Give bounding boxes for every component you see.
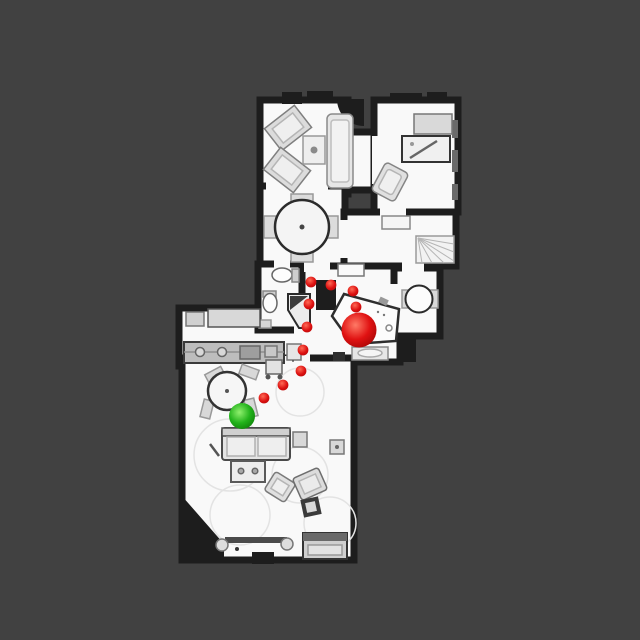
waypoint-dot (304, 299, 315, 310)
goal-marker (342, 313, 377, 348)
floorplan-viewport (0, 0, 640, 640)
sink (259, 320, 271, 328)
kitchen-cabinet (208, 309, 260, 327)
coffee-table (231, 461, 265, 482)
start-marker (229, 403, 255, 429)
round-table (406, 286, 433, 313)
floorplan-map (0, 0, 640, 640)
toilet (272, 268, 292, 282)
waypoint-dot (326, 280, 337, 291)
cabinet (414, 114, 452, 134)
waypoint-dot (348, 286, 359, 297)
waypoint-dot (259, 393, 270, 404)
kitchen-cart (266, 360, 282, 374)
stairs (416, 236, 454, 263)
waypoint-dot (302, 322, 313, 333)
tv-stand (303, 533, 347, 559)
waypoint-dot (296, 366, 307, 377)
hall-table (382, 216, 410, 229)
toilet (263, 294, 277, 313)
side-table-dark (300, 496, 321, 517)
waypoint-dot (351, 302, 362, 313)
wall-shelf (338, 264, 364, 276)
waypoint-dot (278, 380, 289, 391)
couch (222, 428, 290, 460)
waypoint-dot (298, 345, 309, 356)
waypoint-dot (306, 277, 317, 288)
